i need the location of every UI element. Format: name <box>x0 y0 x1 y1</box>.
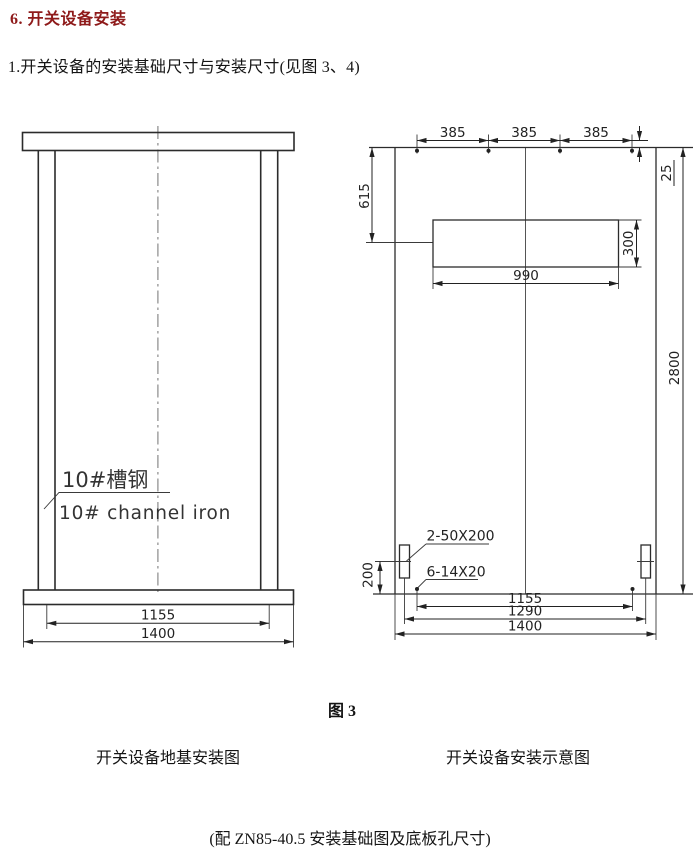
dim-slot-to-edge-200: 200 <box>361 562 381 595</box>
plate-outline <box>369 148 693 595</box>
anchor-slots <box>375 545 654 578</box>
svg-text:6-14X20: 6-14X20 <box>427 565 486 581</box>
dim-hole-pitch-385: 385 385 385 <box>417 125 648 141</box>
svg-text:300: 300 <box>621 231 637 257</box>
section-heading: 6. 开关设备安装 <box>10 5 127 29</box>
caption-foundation-view: 开关设备地基安装图 <box>96 744 240 768</box>
svg-text:200: 200 <box>361 562 377 588</box>
channel-label-cn: 10#槽钢 <box>62 468 148 492</box>
svg-text:990: 990 <box>513 268 539 284</box>
base-plate-plan-view: 385 385 385 25 615 300 <box>357 125 693 640</box>
figure3-drawing: 10#槽钢 10# channel iron 1155 1400 <box>0 100 700 675</box>
dim-window-height-300: 300 <box>619 220 642 267</box>
svg-text:385: 385 <box>511 125 537 141</box>
figure-number: 图 3 <box>0 697 684 721</box>
foundation-front-view: 10#槽钢 10# channel iron 1155 1400 <box>23 126 295 648</box>
svg-text:385: 385 <box>440 125 466 141</box>
footnote-model-note: (配 ZN85-40.5 安装基础图及底板孔尺寸) <box>0 825 700 849</box>
svg-text:615: 615 <box>357 183 373 209</box>
svg-text:385: 385 <box>583 125 609 141</box>
manual-page: 6. 开关设备安装 1.开关设备的安装基础尺寸与安装尺寸(见图 3、4) 10#… <box>0 0 700 863</box>
svg-text:1155: 1155 <box>141 608 175 624</box>
bottom-base-beam <box>24 590 294 605</box>
svg-text:2-50X200: 2-50X200 <box>427 529 495 545</box>
channel-iron-callout: 10#槽钢 10# channel iron <box>44 468 231 524</box>
hole-note-callout: 6-14X20 <box>418 565 486 589</box>
dim-edge-to-hole-25: 25 <box>640 126 676 186</box>
channel-label-en: 10# channel iron <box>59 503 231 524</box>
svg-text:1400: 1400 <box>141 626 175 642</box>
svg-text:1290: 1290 <box>508 604 542 620</box>
dim-overall-height-2800: 2800 <box>667 148 683 595</box>
svg-text:25: 25 <box>659 164 675 181</box>
slot-note-callout: 2-50X200 <box>407 529 495 562</box>
caption-installation-view: 开关设备安装示意图 <box>446 744 590 768</box>
svg-text:1400: 1400 <box>508 619 542 635</box>
intro-text: 1.开关设备的安装基础尺寸与安装尺寸(见图 3、4) <box>8 53 360 77</box>
svg-text:2800: 2800 <box>667 351 683 385</box>
